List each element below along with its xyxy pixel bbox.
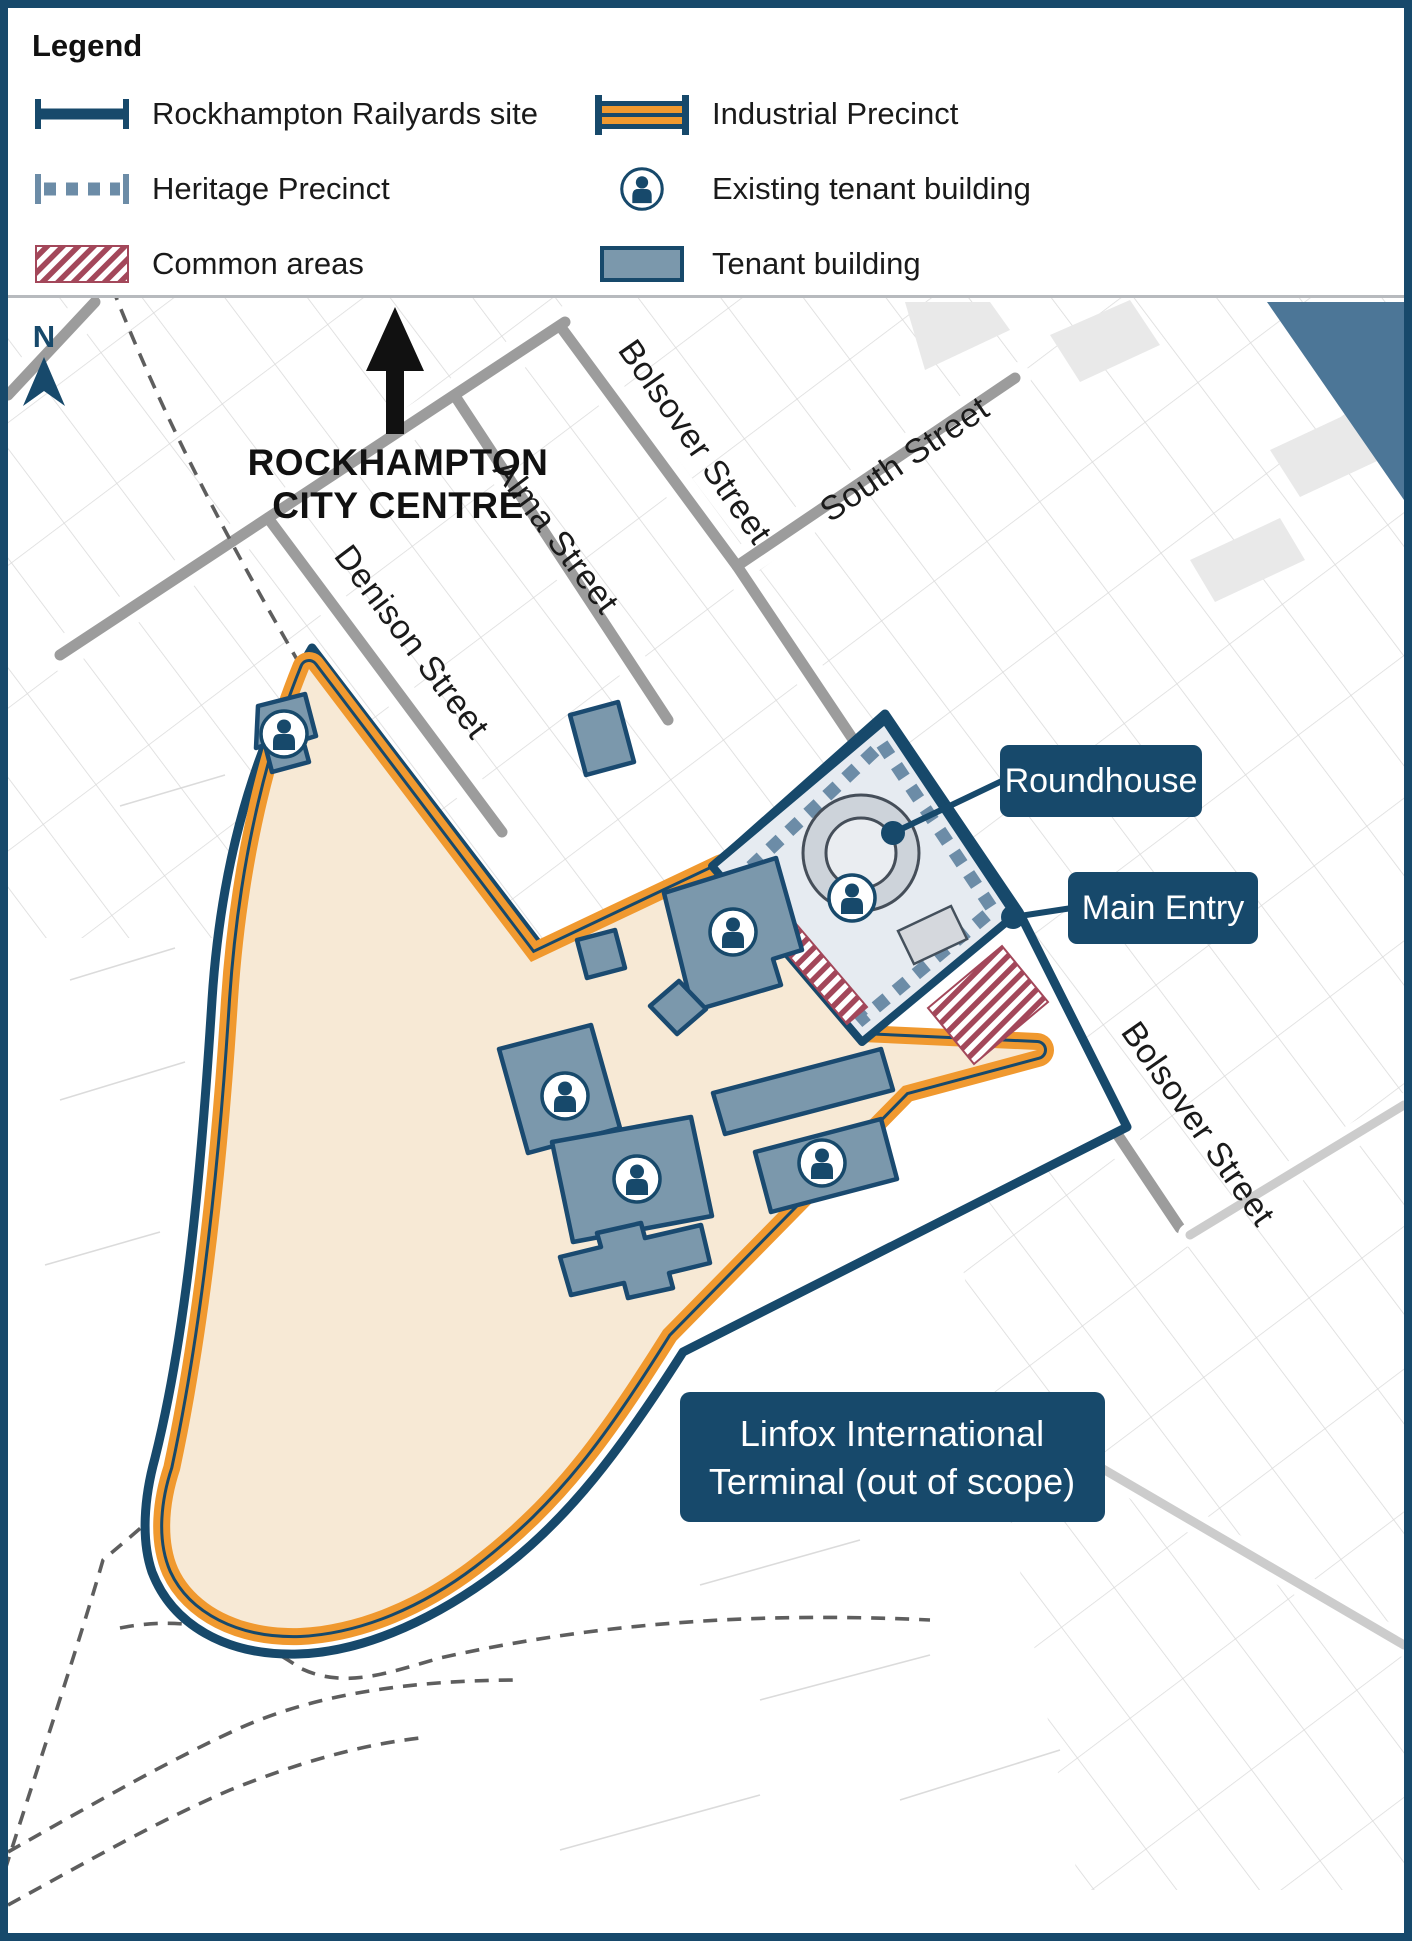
existing-tenant-icon bbox=[829, 875, 875, 921]
main-entry-label: Main Entry bbox=[1082, 889, 1245, 927]
legend-item-railyards-site: Rockhampton Railyards site bbox=[32, 92, 592, 136]
heritage-precinct-line-icon bbox=[32, 167, 132, 211]
city-centre-line1: ROCKHAMPTON bbox=[248, 442, 549, 483]
common-areas-swatch-icon bbox=[32, 242, 132, 286]
legend-label: Tenant building bbox=[712, 246, 921, 282]
map-figure: Denison Street Alma Street Bolsover Stre… bbox=[0, 0, 1412, 1941]
linfox-label-line2: Terminal (out of scope) bbox=[709, 1461, 1075, 1502]
legend-item-industrial-precinct: Industrial Precinct bbox=[592, 92, 1388, 136]
legend-title: Legend bbox=[32, 28, 142, 64]
legend-item-tenant-building: Tenant building bbox=[592, 242, 1388, 286]
legend-label: Existing tenant building bbox=[712, 171, 1031, 207]
existing-tenant-icon bbox=[261, 711, 307, 757]
tenant-building-swatch-icon bbox=[592, 242, 692, 286]
existing-tenant-icon bbox=[614, 1156, 660, 1202]
legend-label: Common areas bbox=[152, 246, 364, 282]
railyards-site-line-icon bbox=[32, 92, 132, 136]
north-label: N bbox=[33, 319, 55, 354]
legend-label: Industrial Precinct bbox=[712, 96, 958, 132]
legend: Legend Rockhampton Railyards site bbox=[8, 8, 1404, 298]
building bbox=[577, 930, 625, 978]
industrial-precinct-icon bbox=[592, 92, 692, 136]
existing-tenant-icon bbox=[542, 1073, 588, 1119]
linfox-label-line1: Linfox International bbox=[740, 1413, 1044, 1454]
roundhouse-label: Roundhouse bbox=[1005, 762, 1198, 800]
existing-tenant-icon bbox=[799, 1140, 845, 1186]
legend-label: Heritage Precinct bbox=[152, 171, 390, 207]
legend-item-heritage-precinct: Heritage Precinct bbox=[32, 167, 592, 211]
linfox-callout: Linfox International Terminal (out of sc… bbox=[680, 1392, 1105, 1522]
existing-tenant-icon bbox=[710, 909, 756, 955]
legend-item-existing-tenant: Existing tenant building bbox=[592, 167, 1388, 211]
legend-item-common-areas: Common areas bbox=[32, 242, 592, 286]
city-centre-line2: CITY CENTRE bbox=[272, 485, 524, 526]
existing-tenant-icon bbox=[592, 167, 692, 211]
legend-label: Rockhampton Railyards site bbox=[152, 96, 538, 132]
